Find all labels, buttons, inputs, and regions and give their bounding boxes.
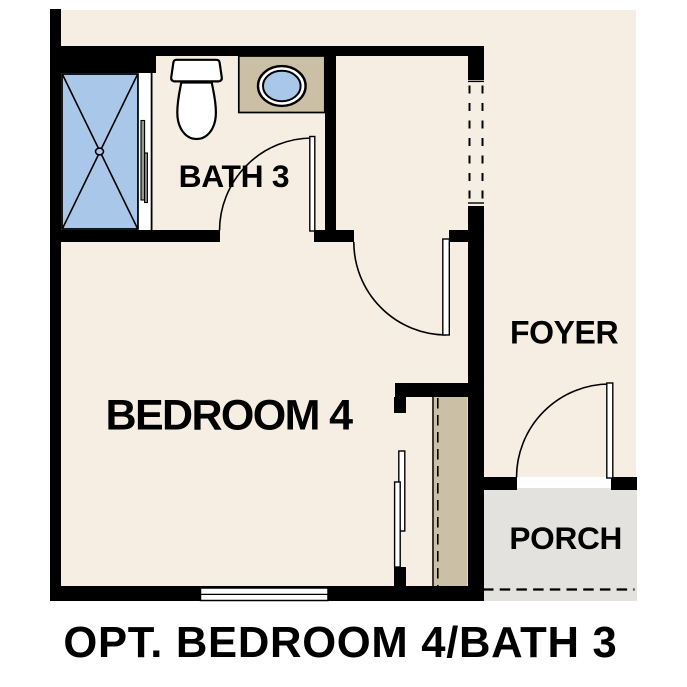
svg-text:BATH 3: BATH 3 [179, 158, 290, 194]
svg-text:BEDROOM 4: BEDROOM 4 [105, 392, 353, 440]
svg-text:FOYER: FOYER [510, 315, 619, 351]
svg-text:PORCH: PORCH [509, 520, 622, 556]
svg-text:OPT. BEDROOM 4/BATH 3: OPT. BEDROOM 4/BATH 3 [63, 619, 617, 667]
